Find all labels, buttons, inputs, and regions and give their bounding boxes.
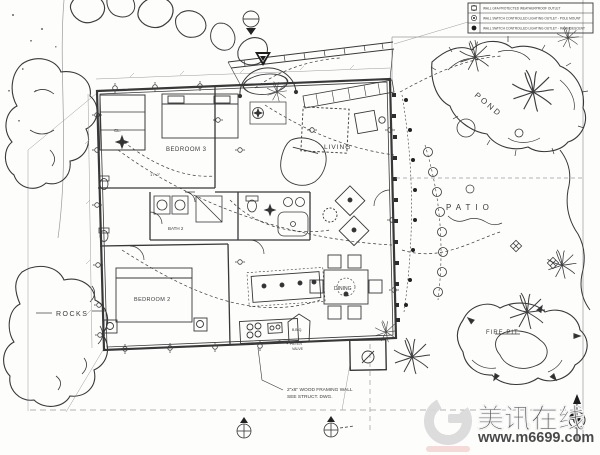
bath2-label: BATH 2: [168, 226, 184, 231]
plants: [375, 27, 579, 374]
bath-block: [99, 176, 308, 242]
stepping-stones: [424, 145, 448, 300]
pond-label: POND: [473, 91, 504, 119]
living-label: LIVING: [324, 144, 351, 151]
scan-noise-specks: [8, 14, 57, 122]
filter-note: FILTER VALVE: [278, 340, 304, 351]
patio-area: [396, 150, 590, 310]
framing-note: 2"x6" WOOD FRAMING WALL SEE STRUCT. DWG.: [258, 348, 353, 400]
legend-row1-label: WALL GFA PROTECTED WEATHERPROOF OUTLET: [483, 7, 561, 11]
framing-note-line1: 2"x6" WOOD FRAMING WALL: [287, 387, 353, 393]
fire-pit-area: [457, 303, 587, 384]
entry-porch: [238, 68, 297, 124]
canopy-trellis: [228, 42, 394, 108]
switched-pole-light-icon: [471, 15, 476, 20]
legend-row3-label: WALL SWITCH CONTROLLED LIGHTING OUTLET -…: [483, 27, 585, 31]
watermark: 美讯在线 www.m6699.com: [422, 395, 595, 452]
section-marker-top: [243, 11, 259, 35]
switched-incandescent-icon: [472, 26, 477, 31]
duplex-outlet-icon: [471, 5, 477, 10]
room-living: [276, 107, 385, 246]
property-boundary-lines: [28, 0, 583, 443]
house-outline: [97, 79, 396, 370]
section-marker-bottom-right: [324, 416, 354, 437]
patio-label: PATIO: [446, 203, 494, 212]
framing-note-line2: SEE STRUCT. DWG.: [287, 394, 333, 400]
fire-pit-label: FIRE PIT: [486, 330, 519, 336]
closet-label: CL.: [114, 128, 121, 133]
legend-box: WALL GFA PROTECTED WEATHERPROOF OUTLET W…: [468, 3, 593, 33]
filter-note-line1: FILTER: [290, 342, 303, 346]
bedroom2-label: BEDROOM 2: [134, 297, 171, 303]
boulder-chain: [70, 0, 288, 97]
kitchen-island: [239, 267, 325, 343]
scanned-site-plan: ROCKS: [0, 0, 600, 455]
rock-outcrop-left-upper: [5, 59, 97, 189]
pond-area: [431, 36, 588, 156]
legend-row2-label: WALL SWITCH CONTROLLED LIGHTING OUTLET -…: [483, 17, 581, 21]
watermark-logo-icon: [422, 395, 475, 452]
site-plan-drawing: ROCKS: [0, 0, 600, 455]
dining-label: DINING: [334, 286, 352, 292]
rocks-label: ROCKS: [56, 311, 88, 318]
watermark-url: www.m6699.com: [477, 430, 594, 446]
bbq-label: B.B.Q.: [292, 328, 302, 332]
section-marker-bottom-left: [237, 417, 251, 438]
filter-note-line2: VALVE: [292, 347, 304, 351]
bedroom3-label: BEDROOM 3: [166, 147, 207, 153]
interior-walls: [98, 87, 390, 345]
